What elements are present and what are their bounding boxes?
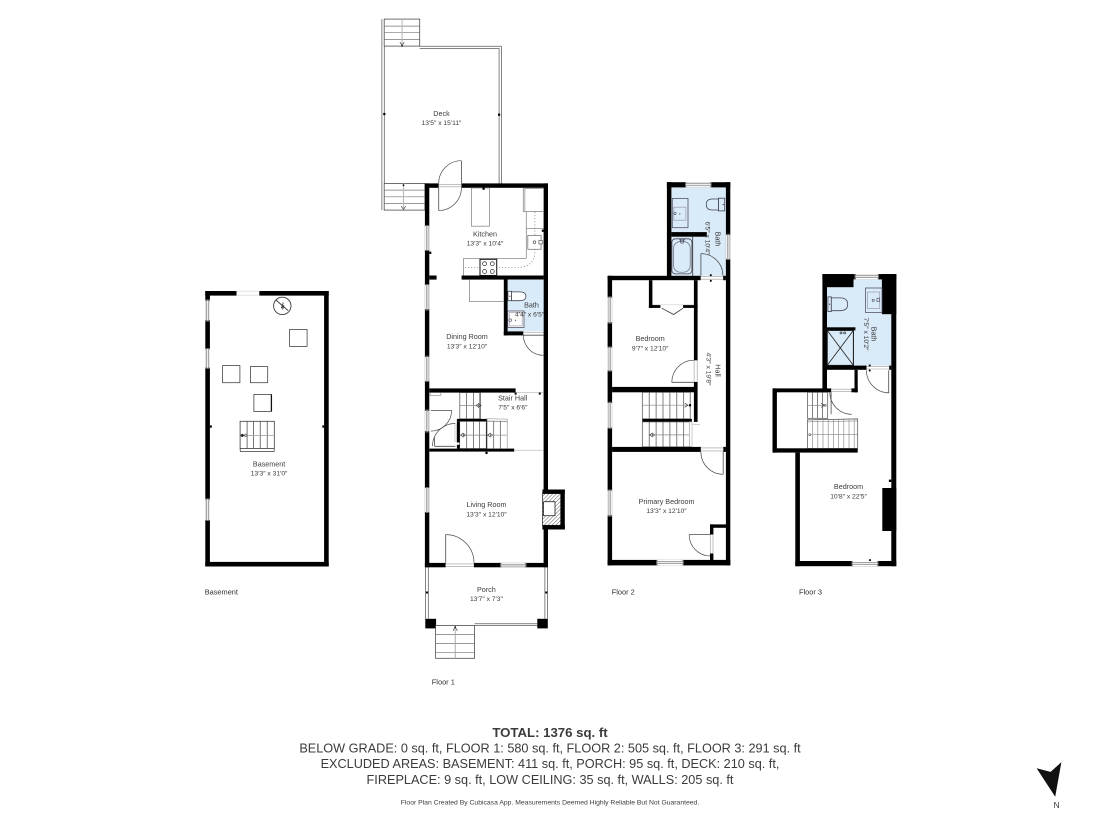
svg-text:4′4″ x 6′5″: 4′4″ x 6′5″ (515, 312, 545, 319)
svg-text:9′7″ x 12′10″: 9′7″ x 12′10″ (632, 345, 669, 352)
svg-text:Floor Plan Created By Cubicasa: Floor Plan Created By Cubicasa App. Meas… (401, 800, 700, 807)
svg-text:Basement: Basement (253, 459, 285, 468)
svg-text:Bedroom: Bedroom (636, 334, 665, 343)
svg-text:13′3″ x 12′10″: 13′3″ x 12′10″ (646, 508, 687, 515)
svg-text:Floor 1: Floor 1 (432, 677, 455, 686)
svg-text:Stair Hall: Stair Hall (498, 394, 528, 403)
svg-text:TOTAL: 1376 sq. ft: TOTAL: 1376 sq. ft (492, 725, 608, 740)
svg-text:6′5″ x 10′4″: 6′5″ x 10′4″ (704, 222, 711, 256)
svg-text:7′5″ x 10′2″: 7′5″ x 10′2″ (862, 318, 869, 352)
svg-text:13′3″ x 12′10″: 13′3″ x 12′10″ (447, 344, 488, 351)
svg-text:Deck: Deck (433, 109, 450, 118)
svg-text:7′5″ x 6′6″: 7′5″ x 6′6″ (498, 404, 528, 411)
svg-text:13′3″ x 31′0″: 13′3″ x 31′0″ (251, 471, 288, 478)
svg-text:4′3″ x 19′8″: 4′3″ x 19′8″ (705, 353, 712, 387)
svg-text:13′3″ x 12′10″: 13′3″ x 12′10″ (466, 511, 507, 518)
svg-text:10′8″ x 22′5″: 10′8″ x 22′5″ (830, 493, 867, 500)
svg-text:Bath: Bath (524, 301, 539, 310)
svg-text:Dining Room: Dining Room (446, 332, 488, 341)
svg-text:N: N (1054, 800, 1060, 810)
svg-text:FIREPLACE: 9 sq. ft, LOW CEILI: FIREPLACE: 9 sq. ft, LOW CEILING: 35 sq.… (367, 773, 734, 787)
svg-text:Porch: Porch (477, 585, 496, 594)
svg-text:Primary Bedroom: Primary Bedroom (639, 497, 695, 506)
svg-text:Basement: Basement (205, 587, 238, 596)
svg-text:Bath: Bath (869, 327, 878, 342)
svg-text:Floor 2: Floor 2 (612, 587, 635, 596)
svg-text:13′7″ x 7′3″: 13′7″ x 7′3″ (470, 596, 504, 603)
svg-text:Living Room: Living Room (467, 500, 507, 509)
svg-text:Bedroom: Bedroom (834, 482, 863, 491)
svg-text:Floor 3: Floor 3 (799, 587, 822, 596)
svg-text:13′3″ x 10′4″: 13′3″ x 10′4″ (467, 241, 504, 248)
svg-text:Hall: Hall (713, 364, 722, 377)
svg-text:BELOW GRADE: 0 sq. ft, FLOOR 1: BELOW GRADE: 0 sq. ft, FLOOR 1: 580 sq. … (299, 741, 801, 755)
svg-text:13′5″ x 15′11″: 13′5″ x 15′11″ (422, 120, 462, 127)
svg-text:Kitchen: Kitchen (473, 229, 497, 238)
svg-text:EXCLUDED AREAS: BASEMENT: 411: EXCLUDED AREAS: BASEMENT: 411 sq. ft, PO… (321, 757, 780, 771)
svg-text:Bath: Bath (713, 232, 722, 247)
